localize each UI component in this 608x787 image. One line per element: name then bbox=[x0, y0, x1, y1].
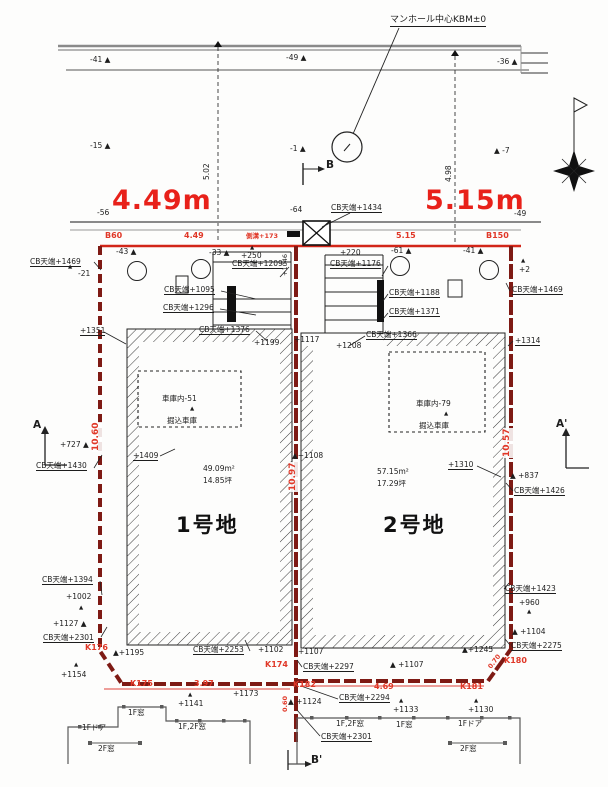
triangle-marker: ▲ bbox=[399, 698, 403, 704]
survey-point: K181 bbox=[460, 683, 483, 692]
cb-level: CB天端+1469 bbox=[30, 258, 81, 267]
section-label: A' bbox=[556, 419, 567, 431]
frontage-dim: 4.49m bbox=[112, 186, 212, 216]
spot-elevation: +1102 bbox=[258, 646, 283, 654]
spot-elevation: +1002 bbox=[66, 593, 91, 601]
dim-rot: 0.60 bbox=[282, 696, 289, 712]
spot-elevation: -41 ▲ bbox=[463, 247, 483, 255]
triangle-marker: ▲ bbox=[190, 406, 194, 412]
triangle-marker: ▲ bbox=[68, 264, 72, 270]
dim-rot: 10.57 bbox=[503, 428, 513, 458]
spot-elevation: ▲ +837 bbox=[510, 472, 539, 480]
spot-elevation: +2 bbox=[519, 266, 530, 274]
survey-point: K180 bbox=[504, 657, 527, 666]
spot-elevation: +1133 bbox=[393, 706, 418, 714]
spot-elevation: -41 ▲ bbox=[90, 56, 110, 64]
spot-elevation: ▲+1195 bbox=[113, 649, 144, 657]
area-label: 57.15m² bbox=[377, 468, 409, 476]
boundary-dim: B150 bbox=[486, 232, 509, 241]
spot-elevation: +1154 bbox=[61, 671, 86, 679]
section-label: A bbox=[33, 420, 41, 432]
cb-level: CB天端+2297 bbox=[303, 663, 354, 672]
spot-elevation: +1141 bbox=[178, 700, 203, 708]
window-label: 1F窓 bbox=[128, 709, 145, 717]
section-label: B bbox=[326, 160, 334, 172]
triangle-marker: ▲ bbox=[521, 258, 525, 264]
spot-elevation: ▲ +1107 bbox=[390, 661, 424, 669]
spot-elevation: +1107 bbox=[298, 648, 323, 656]
dim-rot: 5.02 bbox=[203, 163, 211, 180]
plot-name: 1号地 bbox=[176, 514, 239, 537]
section-label: B' bbox=[311, 755, 322, 767]
site-plan-drawing: マンホール中心KBM±0-41 ▲-49 ▲-36 ▲-15 ▲-1 ▲▲ -7… bbox=[0, 0, 608, 787]
cb-level: CB天端+2253 bbox=[193, 646, 244, 655]
window-label: 1F,2F窓 bbox=[178, 723, 206, 731]
cb-level: CB天端+1371 bbox=[389, 308, 440, 317]
survey-point: K182 bbox=[293, 681, 316, 690]
spot-elevation: +1130 bbox=[468, 706, 493, 714]
survey-point: K176 bbox=[85, 644, 108, 653]
spot-elevation: ▲ +1124 bbox=[288, 698, 322, 706]
triangle-marker: ▲ bbox=[474, 698, 478, 704]
triangle-marker: ▲ bbox=[79, 605, 83, 611]
survey-point: K174 bbox=[265, 661, 288, 670]
cb-level: CB天端+2301 bbox=[43, 634, 94, 643]
garage-label: 掘込車庫 bbox=[419, 422, 449, 430]
spot-elevation: -1 ▲ bbox=[290, 145, 306, 153]
dim-rot: 10.97 bbox=[289, 462, 299, 492]
cb-level: CB天端+1426 bbox=[514, 487, 565, 496]
triangle-marker: ▲ bbox=[74, 662, 78, 668]
spot-elevation: +1208 bbox=[336, 342, 361, 350]
cb-level: +1351 bbox=[80, 327, 105, 336]
spot-elevation: -64 bbox=[290, 206, 302, 214]
cb-level: CB天端+1209 bbox=[232, 260, 283, 269]
annotation-layer: マンホール中心KBM±0-41 ▲-49 ▲-36 ▲-15 ▲-1 ▲▲ -7… bbox=[0, 0, 608, 787]
spot-elevation: -56 bbox=[97, 209, 109, 217]
cb-level: CB天端+2275 bbox=[511, 642, 562, 651]
window-label: 2F窓 bbox=[98, 745, 115, 753]
spot-elevation: -49 ▲ bbox=[286, 54, 306, 62]
cb-level: CB天端+1296 bbox=[163, 304, 214, 313]
cb-level: CB天端+1095 bbox=[164, 286, 215, 295]
cb-level: CB天端+1430 bbox=[36, 462, 87, 471]
cb-level: CB天端+2301 bbox=[321, 733, 372, 742]
boundary-dim: 5.15 bbox=[396, 232, 416, 241]
garage-label: 車庫内-51 bbox=[162, 395, 197, 403]
cb-level: CB天端+1188 bbox=[389, 289, 440, 298]
cb-level: +1314 bbox=[515, 337, 540, 346]
cb-level: CB天端+1469 bbox=[512, 286, 563, 295]
area-label: 17.29坪 bbox=[377, 480, 406, 488]
window-label: 1Fドア bbox=[82, 724, 106, 732]
cb-level: +1409 bbox=[133, 452, 158, 461]
window-label: 1F,2F窓 bbox=[336, 720, 364, 728]
cb-level: CB天端+1176 bbox=[330, 260, 381, 269]
cb-level: CB天端+1394 bbox=[42, 576, 93, 585]
area-label: 49.09m² bbox=[203, 465, 235, 473]
area-label: 14.85坪 bbox=[203, 477, 232, 485]
cb-level: CB天端+1376 bbox=[199, 326, 250, 335]
cb-level: +1310 bbox=[448, 461, 473, 470]
window-label: 1F窓 bbox=[396, 721, 413, 729]
spot-elevation: ▲+1245 bbox=[462, 646, 493, 654]
garage-label: 車庫内-79 bbox=[416, 400, 451, 408]
spot-elevation: -36 ▲ bbox=[497, 58, 517, 66]
spot-elevation: -49 bbox=[514, 210, 526, 218]
cb-level: CB天端+1434 bbox=[331, 204, 382, 213]
spot-elevation: +1117 bbox=[294, 336, 319, 344]
spot-elevation: ▲ -7 bbox=[494, 147, 510, 155]
boundary-dim: B60 bbox=[105, 232, 122, 241]
window-label: 1Fドア bbox=[458, 720, 482, 728]
spot-elevation: -61 ▲ bbox=[391, 247, 411, 255]
dim-rot: 10.60 bbox=[92, 422, 102, 452]
boundary-dim: 3.97 bbox=[194, 680, 214, 689]
triangle-marker: ▲ bbox=[527, 609, 531, 615]
survey-point: K175 bbox=[130, 680, 153, 689]
cb-level: CB天端+1423 bbox=[505, 585, 556, 594]
kbm-label: マンホール中心KBM±0 bbox=[390, 16, 486, 27]
dim-rot: 4.98 bbox=[445, 165, 453, 182]
spot-elevation: -33 ▲ bbox=[209, 249, 229, 257]
spot-elevation: +1173 bbox=[233, 690, 258, 698]
boundary-dim: 4.69 bbox=[374, 683, 394, 692]
triangle-marker: ▲ bbox=[188, 692, 192, 698]
spot-elevation: -15 ▲ bbox=[90, 142, 110, 150]
plot-name: 2号地 bbox=[383, 514, 446, 537]
spot-elevation: +220 bbox=[340, 249, 361, 257]
spot-elevation: ▲ +1104 bbox=[512, 628, 546, 636]
dim-rot: 0.70 bbox=[487, 653, 503, 670]
spot-elevation: +960 bbox=[519, 599, 540, 607]
spot-elevation: -21 bbox=[78, 270, 90, 278]
boundary-dim: 4.49 bbox=[184, 232, 204, 241]
spot-elevation: +1127 ▲ bbox=[53, 620, 87, 628]
frontage-dim: 5.15m bbox=[425, 186, 525, 216]
cb-level: CB天端+1366 bbox=[366, 331, 417, 340]
spot-elevation: +727 ▲ bbox=[60, 441, 89, 449]
triangle-marker: ▲ bbox=[444, 411, 448, 417]
garage-label: 掘込車庫 bbox=[167, 417, 197, 425]
cb-level: CB天端+2294 bbox=[339, 694, 390, 703]
spot-elevation: ▲+1108 bbox=[292, 452, 323, 460]
window-label: 2F窓 bbox=[460, 745, 477, 753]
boundary-dim: 側溝+173 bbox=[246, 233, 278, 240]
spot-elevation: +1199 bbox=[254, 339, 279, 347]
spot-elevation: -43 ▲ bbox=[116, 248, 136, 256]
rot-label: +1046 bbox=[282, 254, 289, 276]
